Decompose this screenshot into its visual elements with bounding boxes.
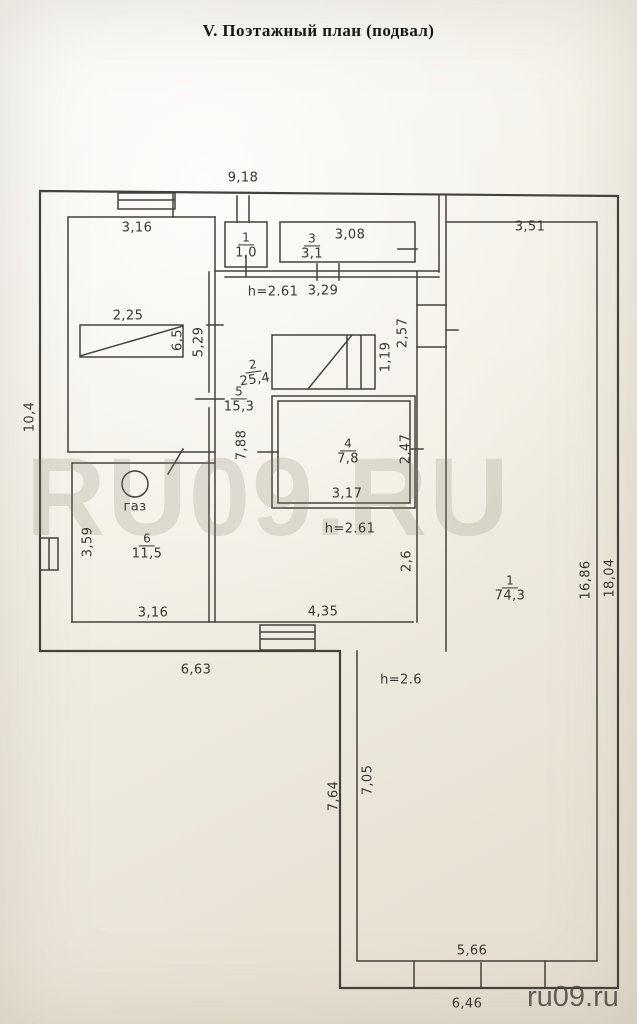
- wall-opening: [417, 305, 458, 347]
- room-label: 4 7,8: [337, 437, 359, 466]
- room-label: 3 3,1: [301, 232, 323, 261]
- porch: [414, 961, 545, 988]
- dimension-label: 9,18: [228, 171, 259, 186]
- gas-label: газ: [124, 500, 147, 515]
- niche: [80, 325, 183, 357]
- dimension-label: 10,4: [23, 402, 38, 433]
- dimension-label: 2,25: [113, 309, 144, 324]
- page-title: V. Поэтажный план (подвал): [203, 21, 435, 41]
- scanned-floorplan-page: V. Поэтажный план (подвал): [0, 0, 637, 1024]
- room-label: 5 15,3: [224, 385, 255, 414]
- room-label: 1 1,0: [235, 231, 257, 260]
- dimension-label: 16,86: [579, 560, 594, 599]
- dimension-label: 2,6: [400, 550, 415, 572]
- dimension-label: 3,17: [332, 487, 363, 502]
- dimension-label: 3,16: [122, 221, 153, 236]
- dimension-label: 1,19: [379, 342, 394, 373]
- room-label: 6 11,5: [132, 532, 163, 561]
- dimension-label: 2,57: [396, 318, 411, 349]
- height-note: h=2.6: [380, 673, 422, 688]
- dimension-label: 4,35: [308, 605, 339, 620]
- dimension-label: 3,59: [81, 527, 96, 558]
- height-note: h=2.61: [325, 522, 375, 537]
- room-label: 1 74,3: [495, 574, 526, 603]
- dimension-label: 5,29: [192, 327, 207, 358]
- stairs: [272, 335, 375, 389]
- dimension-label: 6,46: [452, 997, 483, 1012]
- dimension-label: 3,08: [335, 228, 366, 243]
- window-top: [118, 193, 175, 217]
- dimension-label: 5,66: [457, 944, 488, 959]
- dimension-label: 18,04: [603, 558, 618, 597]
- dimension-label: 6,5: [171, 329, 186, 351]
- watermark-large: RU09.RU: [26, 443, 626, 553]
- height-note: h=2.61: [248, 285, 298, 300]
- window-bottom: [260, 625, 315, 650]
- dimension-label: 7,64: [327, 781, 342, 812]
- dimension-label: 3,16: [138, 606, 169, 621]
- dimension-label: 3,51: [515, 220, 546, 235]
- dimension-label: 3,29: [308, 284, 339, 299]
- dimension-label: 7,88: [235, 430, 250, 461]
- dimension-label: 2,47: [399, 434, 414, 465]
- dimension-label: 7,05: [361, 765, 376, 796]
- watermark-small: ru09.ru: [527, 983, 619, 1012]
- dimension-label: 6,63: [181, 663, 212, 678]
